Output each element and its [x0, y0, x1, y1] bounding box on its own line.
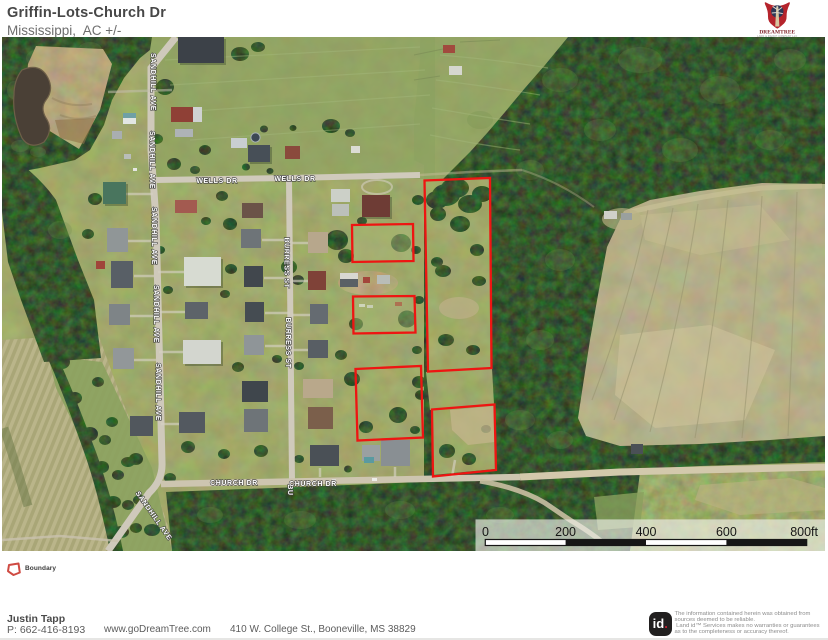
- svg-text:CHURCH DR: CHURCH DR: [289, 481, 337, 488]
- svg-text:BURRESS ST: BURRESS ST: [283, 237, 290, 288]
- svg-text:200: 200: [555, 525, 576, 539]
- svg-text:SANDHILL AVE: SANDHILL AVE: [150, 207, 157, 265]
- svg-text:CHURCH DR: CHURCH DR: [210, 480, 258, 487]
- svg-text:800ft: 800ft: [790, 525, 818, 539]
- svg-text:400: 400: [636, 525, 657, 539]
- svg-text:SANDHILL AVE: SANDHILL AVE: [152, 285, 159, 343]
- svg-text:600: 600: [716, 525, 737, 539]
- svg-text:0: 0: [482, 525, 489, 539]
- svg-text:SANDHILL AVE: SANDHILL AVE: [154, 363, 161, 421]
- svg-text:WELLS DR: WELLS DR: [196, 178, 237, 185]
- svg-text:WELLS DR: WELLS DR: [274, 176, 315, 183]
- svg-text:BURRESS ST: BURRESS ST: [284, 317, 291, 368]
- svg-text:SANDHILL AVE: SANDHILL AVE: [149, 53, 156, 111]
- svg-text:SANDHILL AVE: SANDHILL AVE: [148, 131, 155, 189]
